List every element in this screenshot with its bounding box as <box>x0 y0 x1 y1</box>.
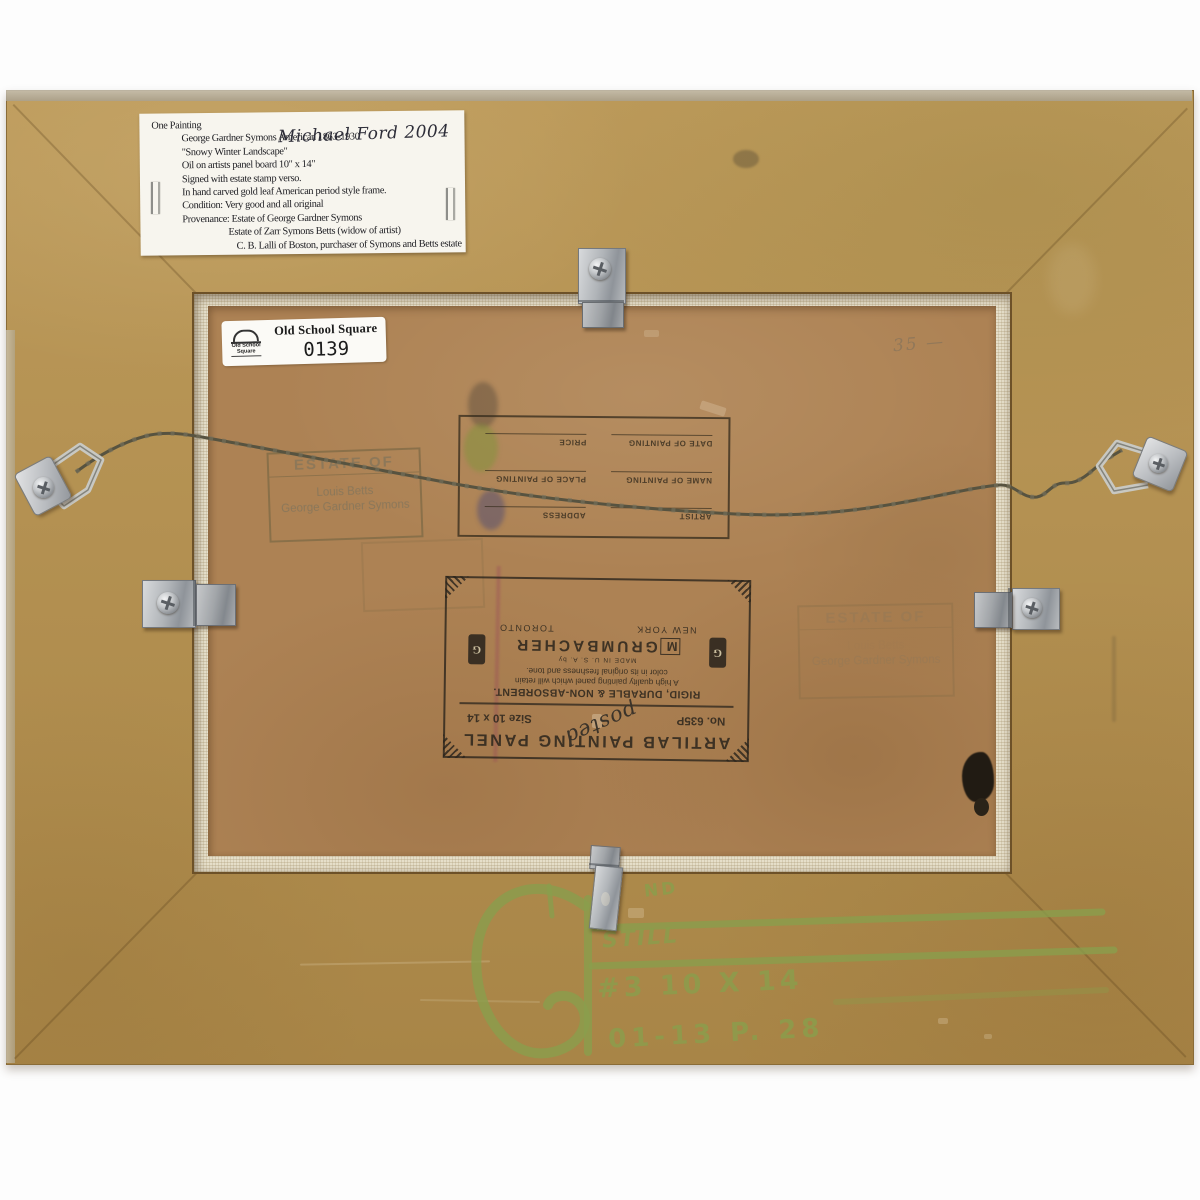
panel-label-made-in: MADE IN U. S. A. by <box>446 654 748 665</box>
retaining-clip-left-flap <box>196 584 236 626</box>
panel-label-size: Size 10 x 14 <box>467 711 532 724</box>
d-ring-screw-right <box>1149 454 1168 473</box>
form-field-date-of-painting: DATE OF PAINTING <box>602 438 712 448</box>
sticker-inventory-number: 0139 <box>266 336 387 361</box>
black-paint-blob <box>962 752 994 802</box>
form-field-price: PRICE <box>476 437 586 447</box>
photo-of-painting-verso: ESTATE OF Louis Betts George Gardner Sym… <box>0 0 1200 1200</box>
panel-label-city-right: TORONTO <box>498 623 553 634</box>
inventory-sticker: Old School Square Old School Square 0139 <box>221 317 386 367</box>
estate-stamp-title: ESTATE OF <box>269 449 420 477</box>
estate-stamp-right-faded: ESTATE OF Louis Betts George Gardner Sym… <box>797 603 955 700</box>
clip-screw-right <box>1022 598 1042 618</box>
brand-name: GRUMBACHER <box>514 636 658 655</box>
clip-highlight <box>601 892 610 906</box>
staple <box>151 182 160 214</box>
grumbacher-crest-badge: G <box>709 638 726 668</box>
artist-info-form-upside-down: ARTIST ADDRESS NAME OF PAINTING PLACE OF… <box>457 415 730 539</box>
panel-label-city-left: NEW YORK <box>636 625 697 636</box>
frame-scuff <box>628 908 644 918</box>
estate-stamp-name2: George Gardner Symons <box>800 653 952 671</box>
label-rule <box>459 702 733 708</box>
crayon-note-nd: ND <box>643 878 679 901</box>
frame-scuff <box>1048 244 1096 314</box>
paint-fleck <box>984 1034 992 1039</box>
form-field-artist: ARTIST <box>602 511 712 521</box>
form-field-name-of-painting: NAME OF PAINTING <box>602 475 712 485</box>
panel-label-stock-no: No. 635P <box>677 714 726 727</box>
logo-caption: Old School Square <box>231 343 261 357</box>
label-corner-ornament <box>727 580 751 604</box>
grumbacher-m-logo: M <box>661 638 681 655</box>
estate-stamp-name1: Louis Betts <box>800 638 952 656</box>
grumbacher-panel-label-upside-down: ARTILAB PAINTING PANEL No. 635P Size 10 … <box>443 576 752 762</box>
paint-fleck <box>938 1018 948 1024</box>
label-line: C. B. Lalli of Boston, purchaser of Symo… <box>237 237 462 253</box>
building-arch-icon <box>233 329 259 342</box>
frame-smudge <box>733 150 759 168</box>
retaining-clip-right-flap <box>974 592 1012 628</box>
panel-scuff <box>644 330 659 337</box>
clip-screw-left <box>157 592 179 614</box>
retaining-clip-top-flap <box>582 302 624 328</box>
frame-scratch-dark <box>1112 636 1116 722</box>
d-ring-screw-left <box>33 477 54 498</box>
clip-screw-top <box>589 258 611 280</box>
clip-bend <box>1008 588 1011 628</box>
label-corner-ornament <box>445 576 469 600</box>
clip-bend <box>193 580 196 626</box>
black-paint-blob <box>974 798 989 816</box>
form-field-address: ADDRESS <box>476 510 586 520</box>
old-school-square-logo: Old School Square <box>225 324 266 363</box>
clip-bend <box>578 300 624 302</box>
staple <box>446 188 455 220</box>
frame-top-edge <box>6 90 1192 101</box>
grumbacher-crest-badge: G <box>468 634 485 664</box>
estate-stamp-left: ESTATE OF Louis Betts George Gardner Sym… <box>266 447 423 542</box>
estate-stamp-title: ESTATE OF <box>799 605 951 631</box>
frame-left-edge <box>6 330 15 1063</box>
form-field-place-of-painting: PLACE OF PAINTING <box>476 473 586 483</box>
